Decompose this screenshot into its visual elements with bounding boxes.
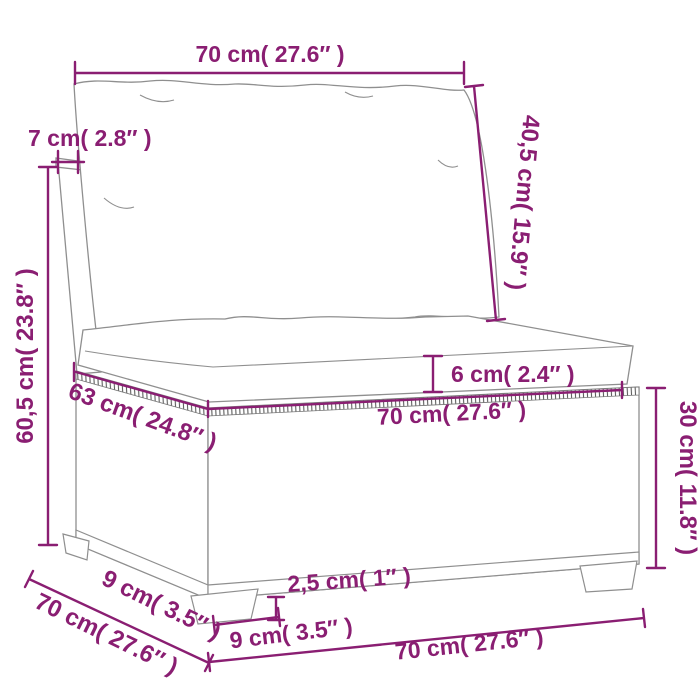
dim-overall-width-label: 70 cm( 27.6″ ) <box>394 623 545 664</box>
dimension-diagram-page: 70 cm( 27.6″ ) 7 cm( 2.8″ ) 60,5 cm( 23.… <box>0 0 700 700</box>
dim-seat-cushion-thickness-label: 6 cm( 2.4″ ) <box>451 361 575 387</box>
sofa-dimension-diagram: 70 cm( 27.6″ ) 7 cm( 2.8″ ) 60,5 cm( 23.… <box>0 0 700 700</box>
seat-cushion <box>78 316 633 402</box>
dim-top-width-label: 70 cm( 27.6″ ) <box>195 41 344 67</box>
rattan-base <box>76 371 639 599</box>
dim-back-panel-thickness-label: 7 cm( 2.8″ ) <box>28 125 152 151</box>
dim-plinth-height: 2,5 cm( 1″ ) <box>268 562 412 620</box>
dim-backrest-height-label: 40,5 cm( 15.9″ ) <box>502 114 544 291</box>
back-cushion <box>74 80 499 339</box>
dim-base-height-label: 30 cm( 11.8″ ) <box>674 401 700 555</box>
dim-overall-height: 60,5 cm( 23.8″ ) <box>12 167 57 545</box>
sofa-illustration <box>56 80 639 624</box>
dim-overall-height-label: 60,5 cm( 23.8″ ) <box>12 268 39 444</box>
dim-base-height: 30 cm( 11.8″ ) <box>647 388 700 568</box>
foot-front-right <box>580 561 637 592</box>
dim-top-width: 70 cm( 27.6″ ) <box>75 41 464 84</box>
